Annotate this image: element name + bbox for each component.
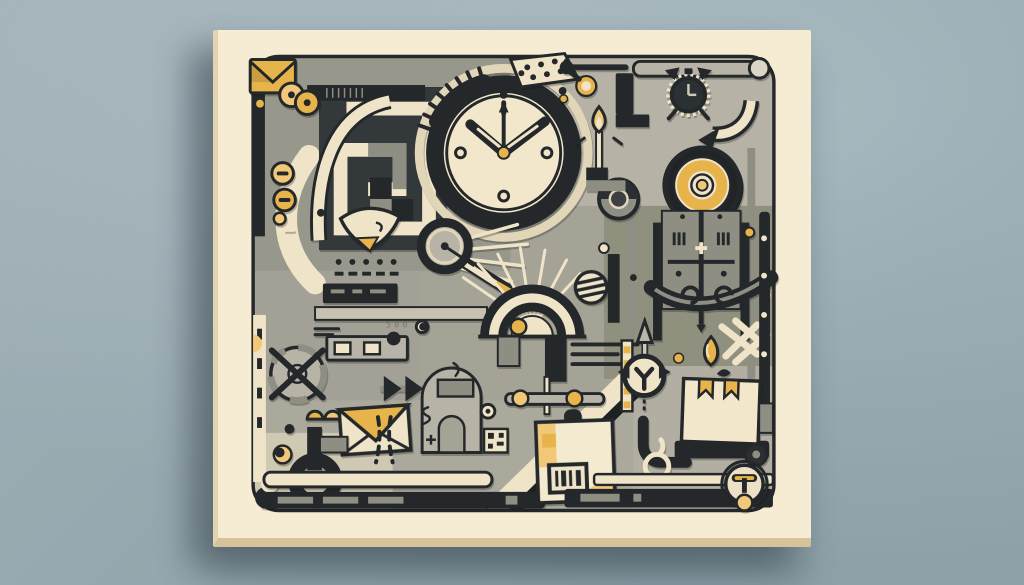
envelope2-icon <box>339 405 411 455</box>
gift-package-icon <box>675 378 773 465</box>
globe-icon <box>271 347 324 400</box>
qr-chip-icon <box>484 429 508 453</box>
faint-number: 500 <box>386 321 411 331</box>
wall: 500 <box>0 0 1024 585</box>
canvas: 500 <box>213 30 811 547</box>
ring-dot-center <box>486 409 491 414</box>
dark-post <box>608 254 620 323</box>
artwork-svg: 500 <box>218 30 811 538</box>
dome-candle-icon <box>422 363 481 452</box>
shipping-box-icon: 0079 <box>535 408 615 503</box>
